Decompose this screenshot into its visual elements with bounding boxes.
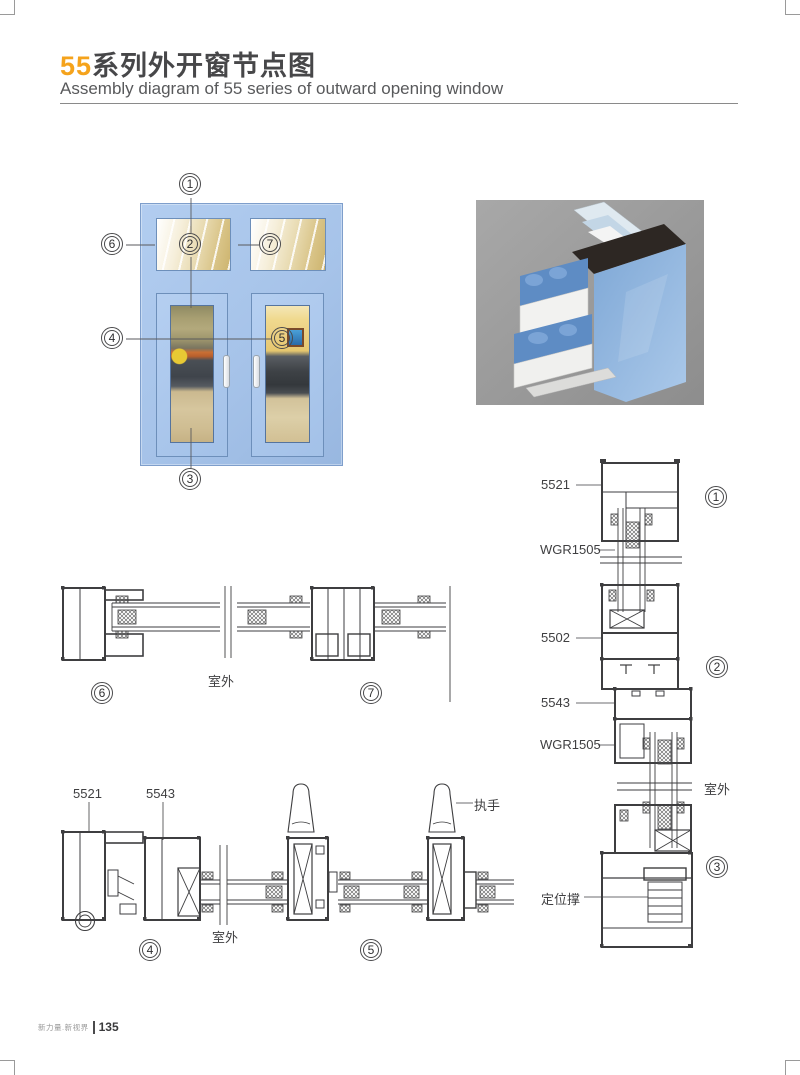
- crop-mark-bottom-left: [0, 1060, 15, 1075]
- crop-mark-bottom-right: [785, 1060, 800, 1075]
- footer-slogan: 新力量.新视界: [38, 1022, 89, 1033]
- page-title-chinese: 系列外开窗节点图: [92, 51, 316, 81]
- section-drawing-4-5: [52, 780, 522, 970]
- callout-4: 4: [101, 327, 123, 349]
- page-title: 55系列外开窗节点图: [60, 44, 316, 83]
- casement-sash-right: [251, 293, 324, 457]
- outdoor-label-right: 室外: [704, 779, 730, 798]
- sash-left-glass: [170, 305, 214, 443]
- section-circle-6: 6: [91, 682, 113, 704]
- page-subtitle: Assembly diagram of 55 series of outward…: [60, 79, 503, 99]
- page-title-series-number: 55: [60, 51, 92, 81]
- callout-3: 3: [179, 468, 201, 490]
- window-illustration: [140, 203, 343, 466]
- callout-2: 2: [179, 233, 201, 255]
- section-circle-1: 1: [705, 486, 727, 508]
- handle-label: 执手: [474, 795, 500, 814]
- callout-1: 1: [179, 173, 201, 195]
- part-label-wgr1505-bottom: WGR1505: [540, 737, 601, 752]
- crop-mark-top-left: [0, 0, 15, 15]
- outdoor-label-mid: 室外: [208, 671, 234, 690]
- page-number: 135: [93, 1021, 119, 1034]
- section-circle-5: 5: [360, 939, 382, 961]
- profile-3d-render: [476, 200, 704, 405]
- section-drawing-6-7: [52, 582, 472, 717]
- section-circle-3: 3: [706, 856, 728, 878]
- part-label-5521-bottom: 5521: [73, 786, 102, 801]
- catalog-page: 55系列外开窗节点图 Assembly diagram of 55 series…: [0, 0, 800, 1075]
- outdoor-label-bottom: 室外: [212, 927, 238, 946]
- casement-sash-left: [156, 293, 228, 457]
- part-label-5543-bottom: 5543: [146, 786, 175, 801]
- callout-7: 7: [259, 233, 281, 255]
- positioning-stay-label: 定位撑: [541, 889, 580, 908]
- part-label-5543-right: 5543: [541, 695, 570, 710]
- page-footer: 新力量.新视界 135: [38, 1021, 119, 1034]
- part-label-5521-right: 5521: [541, 477, 570, 492]
- part-label-5502: 5502: [541, 630, 570, 645]
- section-circle-7: 7: [360, 682, 382, 704]
- sash-right-glass: [265, 305, 310, 443]
- callout-5: 5: [271, 327, 293, 349]
- section-circle-2: 2: [706, 656, 728, 678]
- window-handle-right: [253, 355, 260, 388]
- crop-mark-top-right: [785, 0, 800, 15]
- part-label-wgr1505-top: WGR1505: [540, 542, 601, 557]
- header-rule: [60, 103, 738, 104]
- section-circle-4: 4: [139, 939, 161, 961]
- callout-6: 6: [101, 233, 123, 255]
- window-handle-left: [223, 355, 230, 388]
